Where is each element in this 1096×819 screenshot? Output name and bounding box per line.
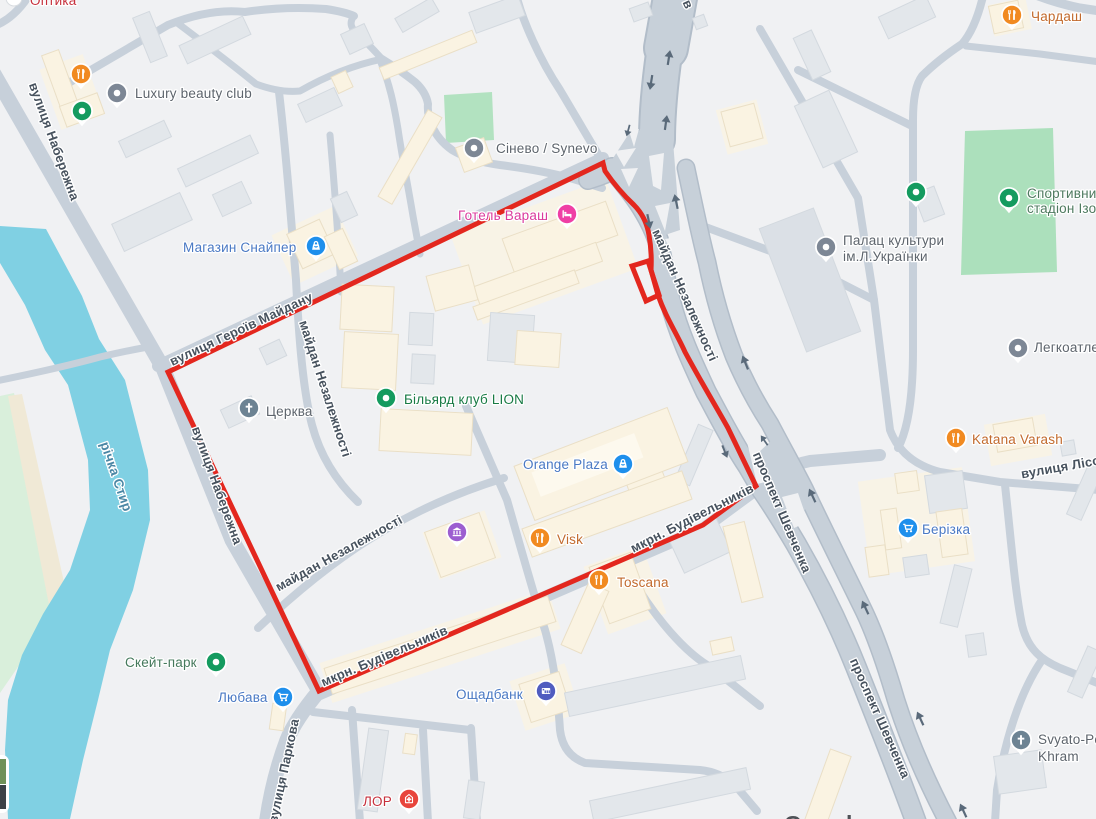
svg-text:Легкоатлетичний: Легкоатлетичний: [1034, 340, 1096, 355]
svg-text:Готель Вараш: Готель Вараш: [458, 208, 548, 223]
svg-text:ЛОР: ЛОР: [363, 794, 392, 809]
svg-text:Google: Google: [784, 811, 866, 819]
svg-text:Ощадбанк: Ощадбанк: [456, 687, 523, 702]
svg-text:стадіон Ізотоп: стадіон Ізотоп: [1027, 201, 1096, 216]
svg-text:Visk: Visk: [557, 532, 583, 547]
svg-text:Більярд клуб LION: Більярд клуб LION: [404, 392, 524, 407]
svg-text:Katana Varash: Katana Varash: [972, 432, 1063, 447]
svg-text:Церква: Церква: [266, 404, 313, 419]
svg-text:Любава: Любава: [218, 690, 268, 705]
svg-text:Khram: Khram: [1038, 749, 1079, 764]
svg-text:Магазин Снайпер: Магазин Снайпер: [183, 240, 296, 255]
svg-text:Скейт-парк: Скейт-парк: [125, 655, 197, 670]
svg-text:Палац культури: Палац культури: [843, 233, 944, 248]
svg-text:Сінево / Synevo: Сінево / Synevo: [496, 141, 598, 156]
svg-text:Toscana: Toscana: [617, 575, 669, 590]
svg-text:Orange Plaza: Orange Plaza: [523, 457, 608, 472]
svg-text:Чардаш: Чардаш: [1031, 9, 1082, 24]
svg-text:Берізка: Берізка: [922, 522, 970, 537]
svg-text:Спортивний: Спортивний: [1027, 186, 1096, 201]
svg-text:Оптика: Оптика: [30, 0, 77, 8]
svg-text:ім.Л.Українки: ім.Л.Українки: [843, 249, 928, 264]
svg-text:Svyato-Pokrovsky: Svyato-Pokrovsky: [1038, 732, 1096, 747]
svg-text:Luxury beauty club: Luxury beauty club: [135, 86, 252, 101]
